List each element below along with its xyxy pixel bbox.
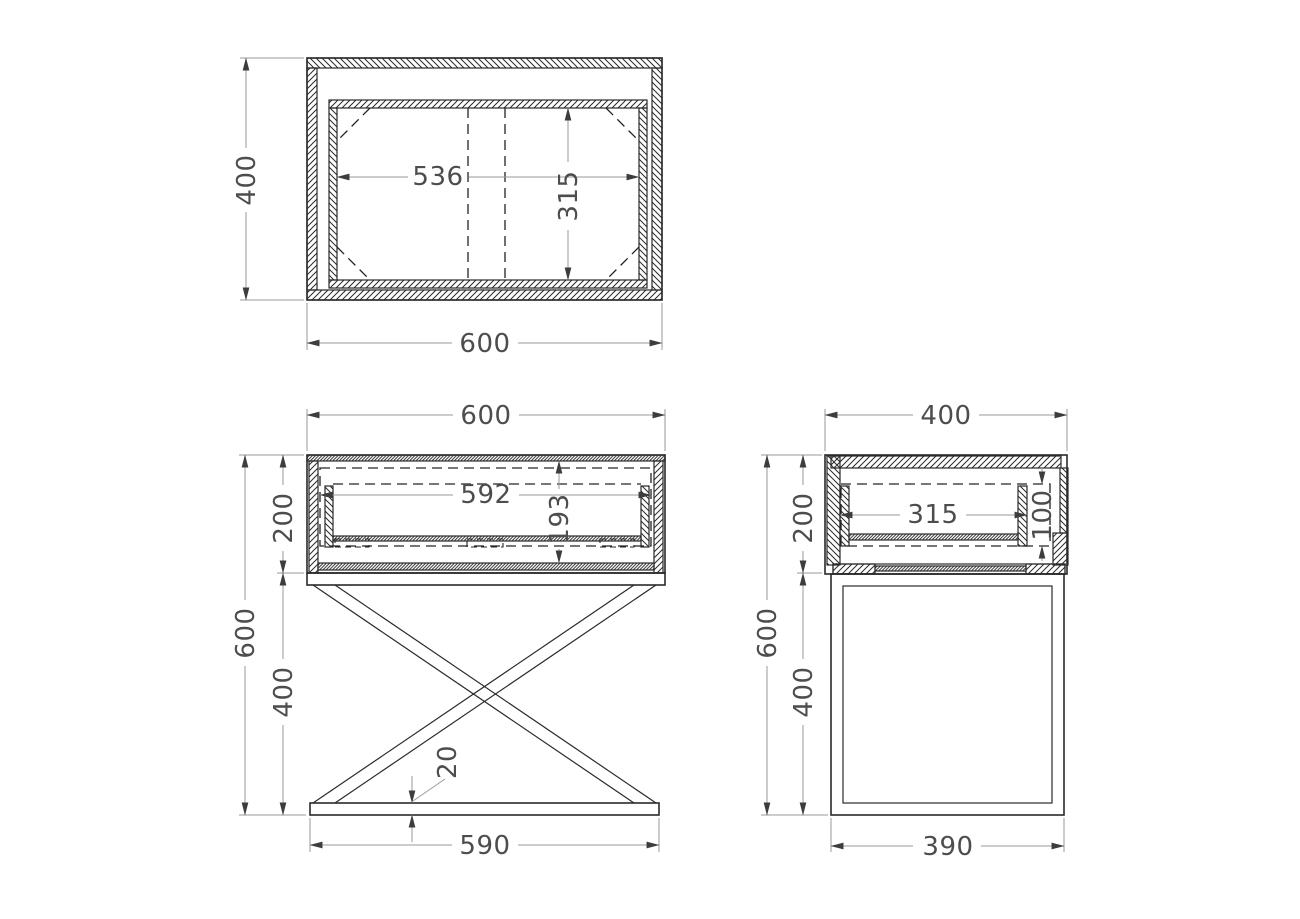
technical-drawing-canvas: 400 600 536 315 [0, 0, 1300, 919]
top-view-hidden-edges [337, 108, 639, 280]
side-view: 400 600 200 400 315 100 390 [753, 401, 1068, 862]
side-drawer-bottom [849, 534, 1018, 540]
legs-top-plate [307, 573, 665, 585]
side-front-panel [827, 456, 840, 565]
top-view-carcass-walls [307, 58, 662, 300]
dim-side-legs-height: 400 [789, 666, 819, 717]
front-view-x-legs [307, 573, 665, 815]
front-view: 600 600 200 400 592 193 590 20 [231, 401, 665, 861]
dim-side-drawer-opening-height: 100 [1028, 489, 1058, 540]
side-bottom-panel [875, 566, 1026, 571]
dim-side-drawer-depth: 315 [907, 500, 958, 530]
drawing-sheet: 400 600 536 315 [0, 0, 1300, 919]
front-view-carcass [307, 455, 665, 573]
dim-side-base-depth: 390 [922, 832, 973, 862]
dim-top-inner-depth: 315 [554, 170, 584, 221]
dim-front-base-width: 590 [459, 831, 510, 861]
side-view-legs [831, 574, 1064, 815]
dim-front-base-thickness: 20 [433, 745, 463, 779]
dim-side-overall-depth: 400 [920, 401, 971, 431]
side-view-dimensions: 400 600 200 400 315 100 390 [753, 401, 1067, 862]
dim-front-total-height: 600 [231, 607, 261, 658]
dim-top-inner-width: 536 [412, 162, 463, 192]
dim-front-drawer-width: 592 [460, 480, 511, 510]
dim-top-overall-depth: 400 [232, 154, 262, 205]
dim-front-legs-height: 400 [269, 666, 299, 717]
dim-front-drawer-height: 193 [545, 493, 575, 544]
dim-top-overall-width: 600 [459, 329, 510, 359]
front-top-panel-edge [307, 455, 665, 461]
dim-front-carcass-height: 200 [269, 492, 299, 543]
legs-bottom-plate [310, 803, 659, 815]
front-view-dimensions: 600 600 200 400 592 193 590 20 [231, 401, 665, 861]
dim-side-total-height: 600 [753, 607, 783, 658]
front-bottom-panel [318, 563, 654, 570]
side-top-panel [831, 456, 1061, 468]
dim-front-overall-width: 600 [460, 401, 511, 431]
top-view: 400 600 536 315 [232, 58, 662, 359]
top-view-drawer-walls [329, 100, 647, 288]
dim-side-carcass-height: 200 [789, 492, 819, 543]
